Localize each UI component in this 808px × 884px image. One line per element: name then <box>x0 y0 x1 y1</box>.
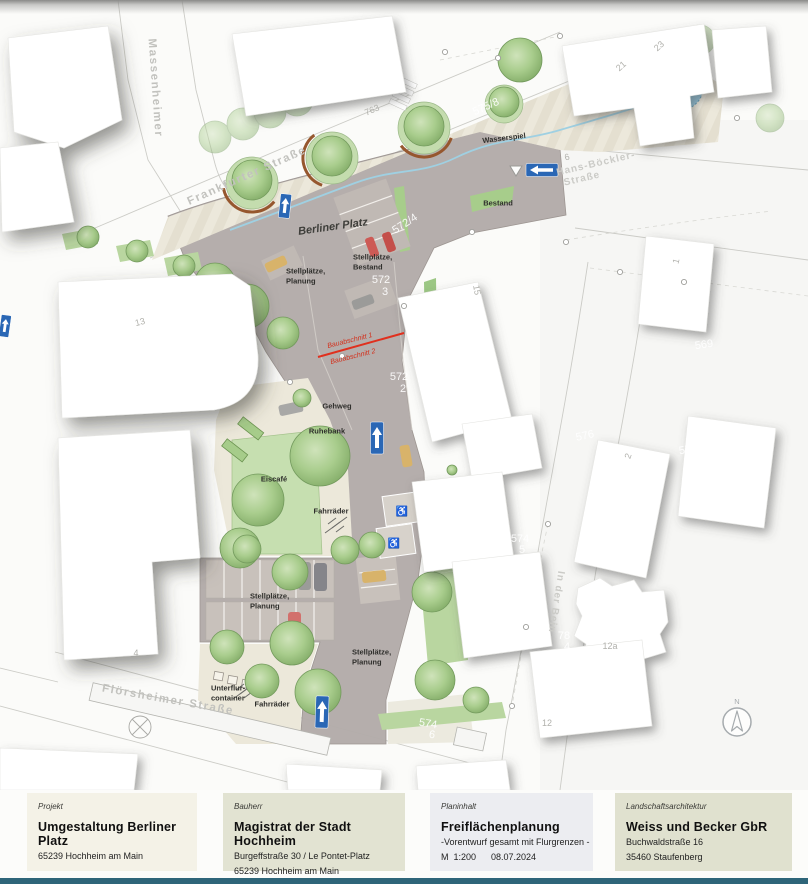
one-way-sign <box>371 422 384 454</box>
building <box>462 414 542 480</box>
building <box>712 26 772 98</box>
titleblock-projekt: Projekt Umgestaltung Berliner Platz 6523… <box>27 793 197 871</box>
parking-area-planung-east <box>356 554 401 604</box>
panel-line: 65239 Hochheim am Main <box>234 865 394 878</box>
client-name: Magistrat der Stadt Hochheim <box>234 820 394 848</box>
north-label: N <box>734 697 739 706</box>
plan-scale-date: M 1:200 08.07.2024 <box>441 851 582 864</box>
panel-line: 65239 Hochheim am Main <box>38 850 186 863</box>
one-way-sign <box>278 193 291 218</box>
building <box>452 552 552 658</box>
building-12 <box>530 640 652 738</box>
one-way-sign <box>315 696 329 728</box>
project-title: Umgestaltung Berliner Platz <box>38 820 186 848</box>
panel-kicker: Landschaftsarchitektur <box>626 802 781 811</box>
building <box>678 416 776 528</box>
architect-name: Weiss und Becker GbR <box>626 820 781 834</box>
car-gray <box>314 563 327 591</box>
panel-line: 35460 Staufenberg <box>626 851 781 864</box>
panel-line: Buchwaldstraße 16 <box>626 836 781 849</box>
panel-line: -Vorentwurf gesamt mit Flurgrenzen - <box>441 836 582 849</box>
panel-line: Burgeffstraße 30 / Le Pontet-Platz <box>234 850 394 863</box>
plan-content-title: Freiflächenplanung <box>441 820 582 834</box>
panel-kicker: Projekt <box>38 802 186 811</box>
site-plan-drawing: N <box>0 0 808 790</box>
building <box>0 748 138 790</box>
titleblock-planinhalt: Planinhalt Freiflächenplanung -Vorentwur… <box>430 793 593 871</box>
one-way-sign <box>526 164 558 177</box>
sheet-bottom-edge <box>0 878 808 884</box>
building-13 <box>58 274 258 418</box>
panel-kicker: Planinhalt <box>441 802 582 811</box>
titleblock-bauherr: Bauherr Magistrat der Stadt Hochheim Bur… <box>223 793 405 871</box>
titleblock-landschaftsarchitektur: Landschaftsarchitektur Weiss und Becker … <box>615 793 792 871</box>
building-1 <box>638 236 714 332</box>
panel-kicker: Bauherr <box>234 802 394 811</box>
plan-sheet: N MassenheimerFrankfurter StraßeFlörshei… <box>0 0 808 884</box>
